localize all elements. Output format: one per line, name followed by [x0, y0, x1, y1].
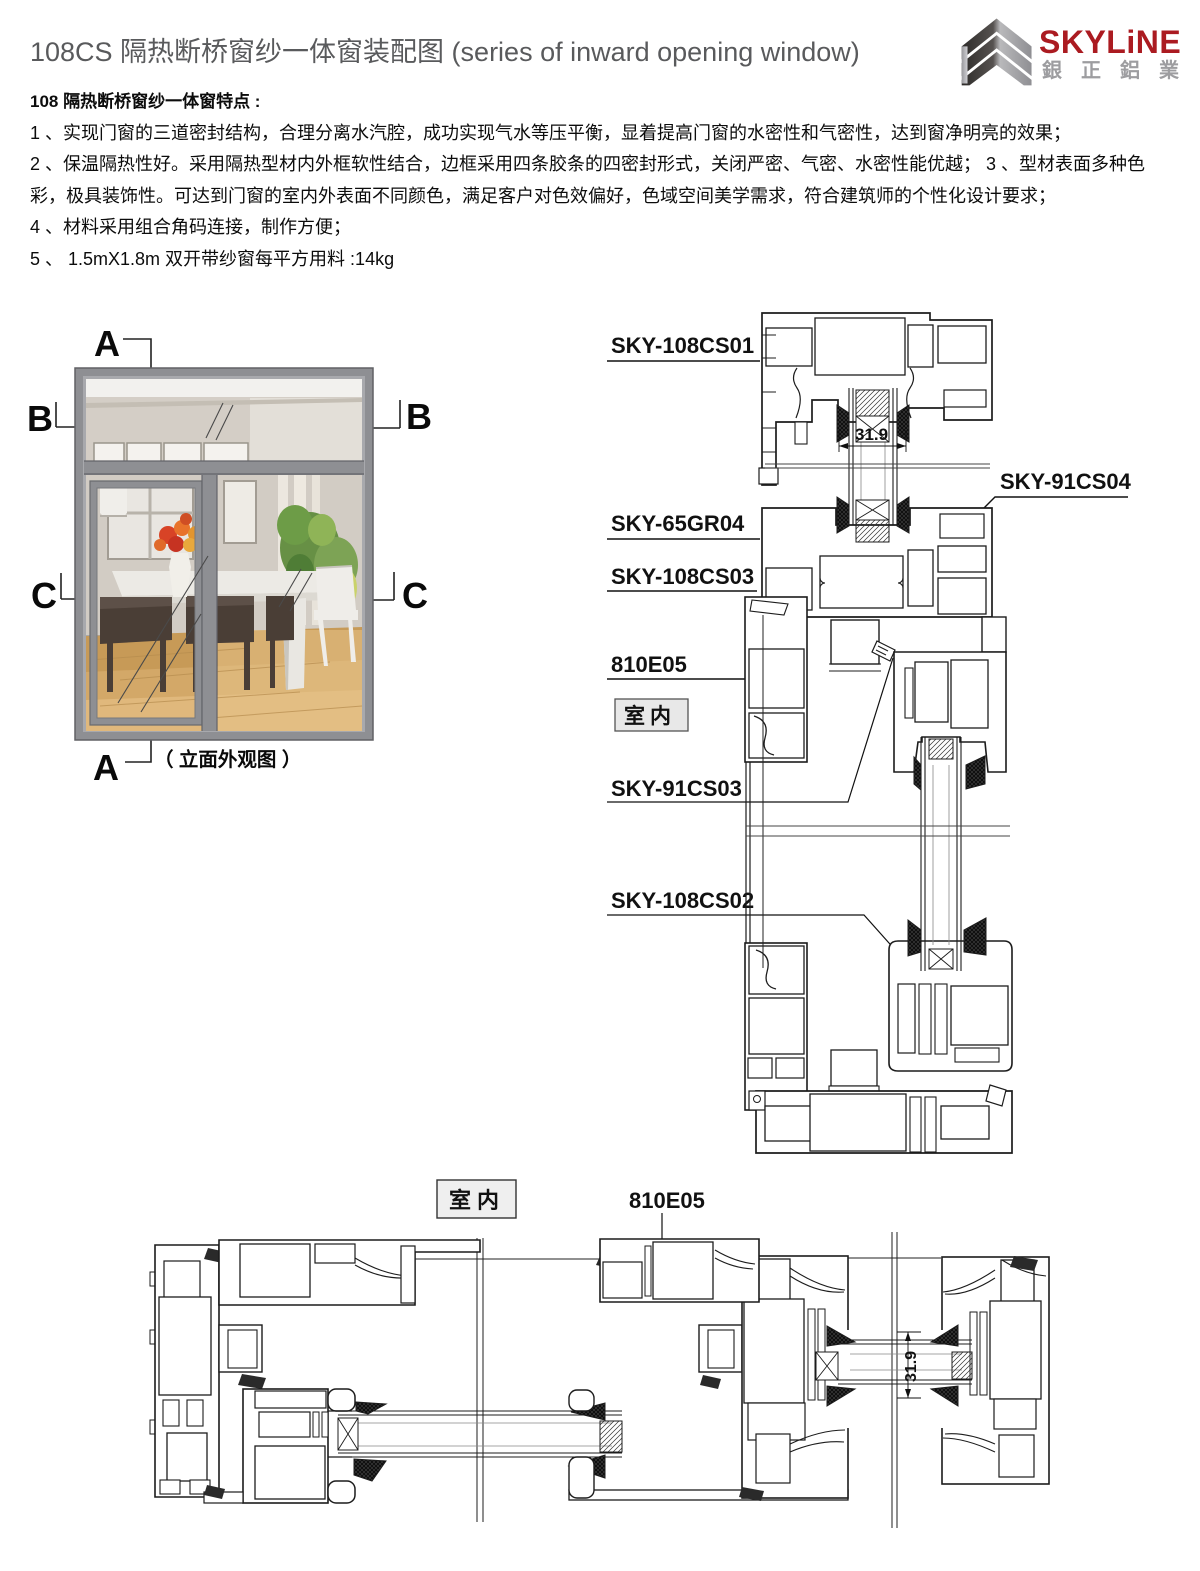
svg-text:室内: 室内	[624, 704, 676, 728]
svg-text:C: C	[402, 575, 428, 616]
svg-text:31.9: 31.9	[903, 1351, 920, 1382]
svg-text:SKY-91CS04: SKY-91CS04	[1000, 469, 1132, 494]
svg-text:SKYLiNE: SKYLiNE	[1039, 24, 1181, 60]
svg-text:SKY-65GR04: SKY-65GR04	[611, 511, 745, 536]
svg-text:SKY-108CS03: SKY-108CS03	[611, 564, 754, 589]
svg-text:SKY-108CS01: SKY-108CS01	[611, 333, 754, 358]
svg-text:B: B	[406, 396, 432, 437]
svg-text:C: C	[31, 575, 57, 616]
svg-text:B: B	[27, 398, 53, 439]
svg-text:銀正鋁業: 銀正鋁業	[1042, 58, 1195, 82]
svg-text:A: A	[94, 323, 120, 364]
svg-text:31.9: 31.9	[855, 425, 888, 444]
svg-text:810E05: 810E05	[629, 1188, 705, 1213]
svg-text:室内: 室内	[449, 1188, 505, 1213]
svg-text:（ 立面外观图 ）: （ 立面外观图 ）	[154, 748, 301, 771]
svg-text:A: A	[93, 747, 119, 788]
svg-text:SKY-91CS03: SKY-91CS03	[611, 776, 742, 801]
svg-text:810E05: 810E05	[611, 652, 687, 677]
svg-text:SKY-108CS02: SKY-108CS02	[611, 888, 754, 913]
